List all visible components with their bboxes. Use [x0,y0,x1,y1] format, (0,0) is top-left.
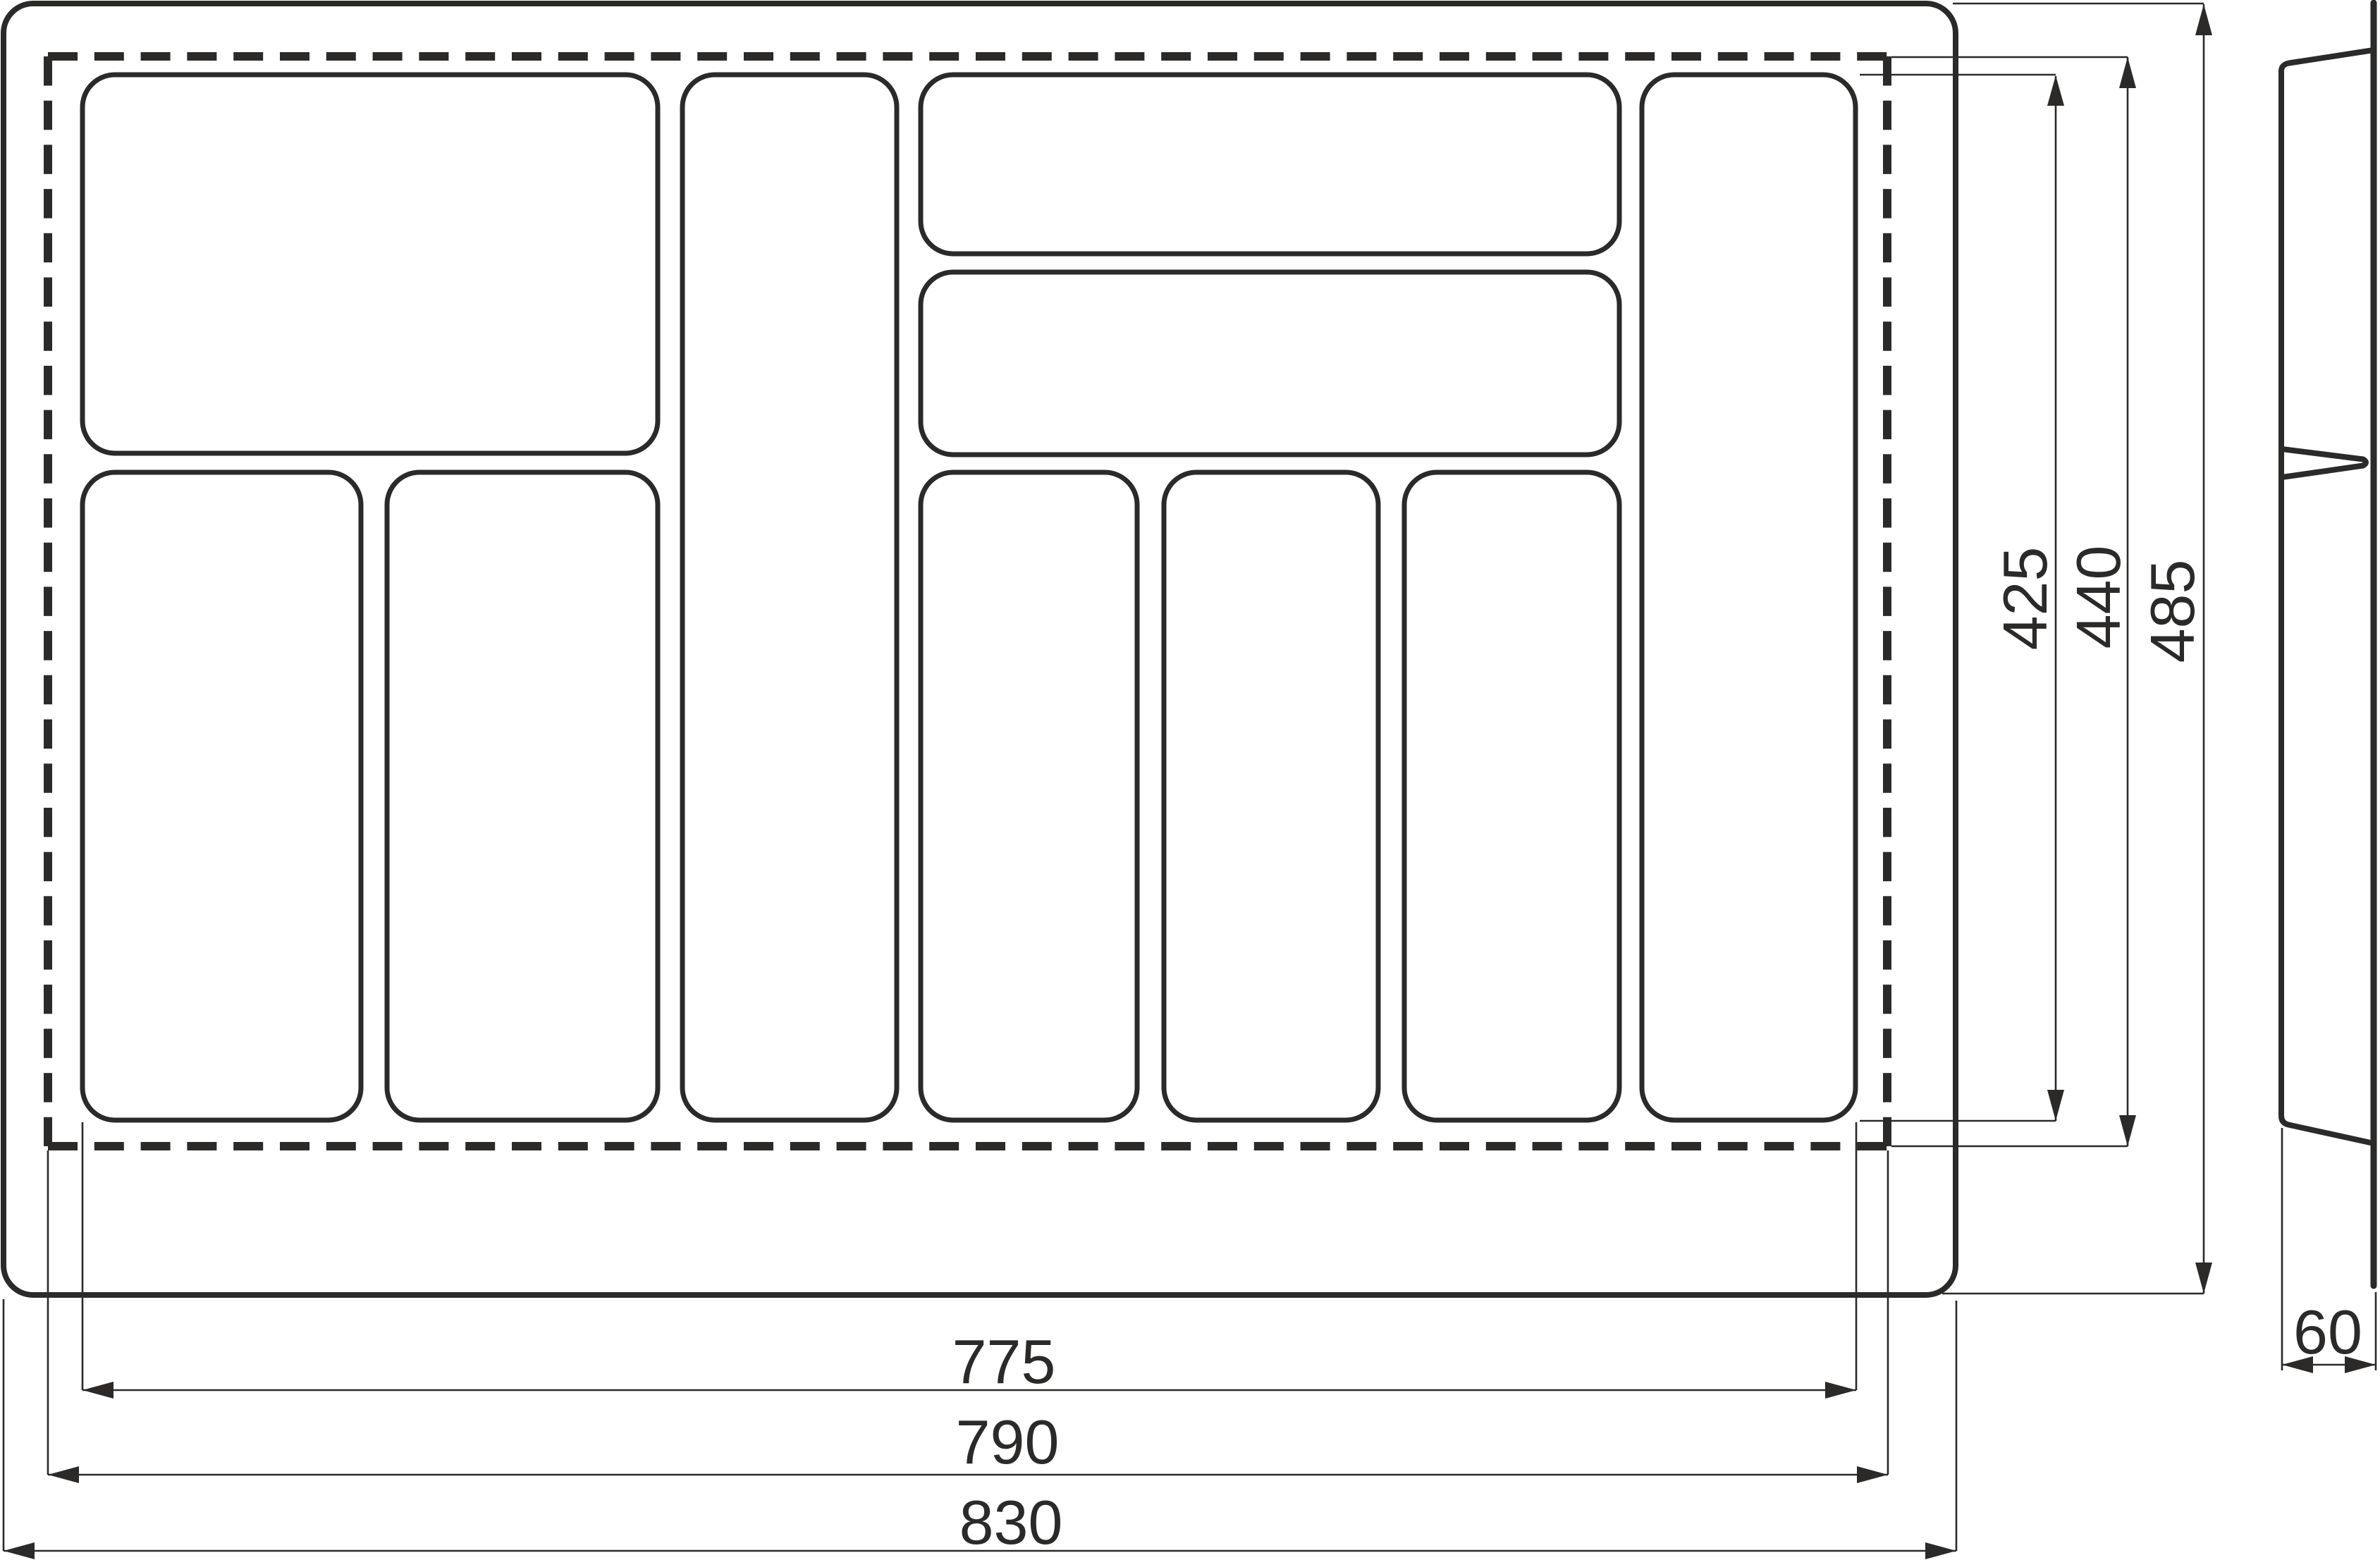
svg-text:830: 830 [959,1487,1063,1557]
svg-text:60: 60 [2293,1297,2362,1367]
svg-text:485: 485 [2137,560,2207,663]
svg-text:425: 425 [1990,547,2060,651]
svg-text:440: 440 [2063,546,2133,649]
svg-text:790: 790 [956,1407,1060,1477]
svg-text:775: 775 [952,1327,1056,1396]
